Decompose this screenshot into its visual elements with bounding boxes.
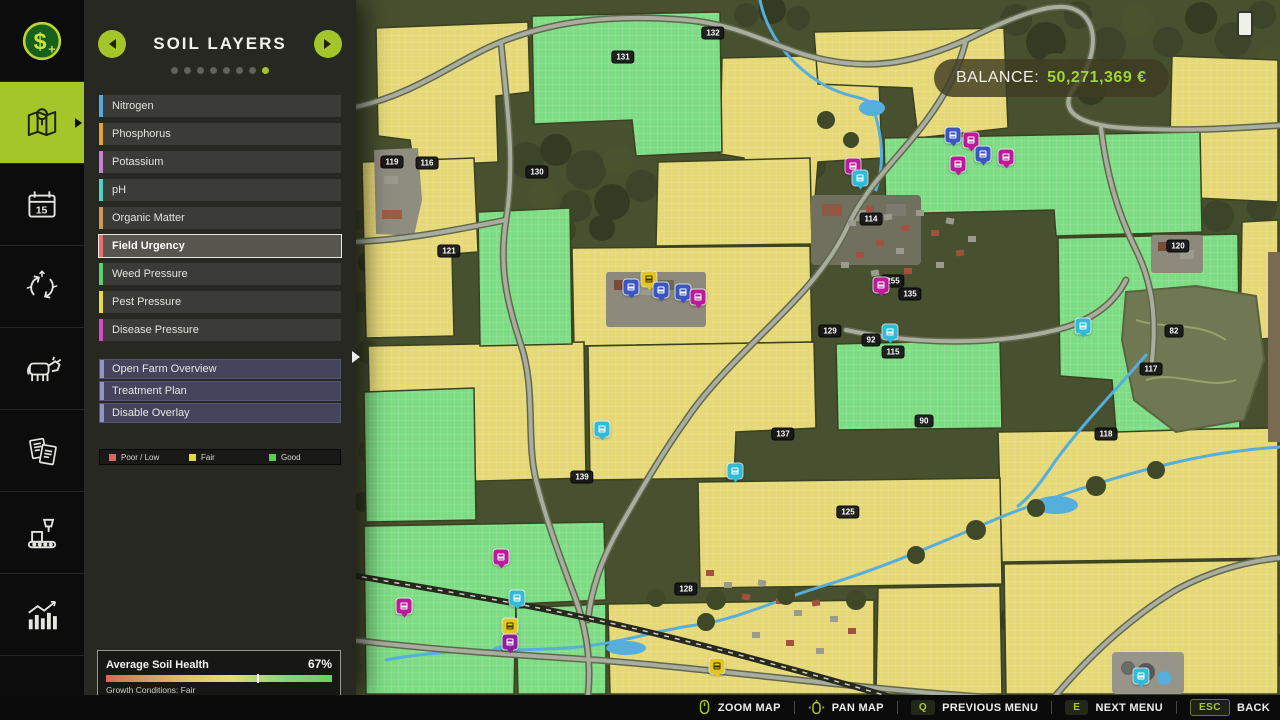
page-dot	[236, 67, 243, 74]
page-dot	[171, 67, 178, 74]
map-icon	[20, 101, 64, 145]
panel-header: SOIL LAYERS	[98, 30, 342, 58]
layer-item-ph[interactable]: pH	[99, 179, 341, 201]
balance-value: 50,271,369 €	[1047, 69, 1146, 87]
poi-production-icon[interactable]	[728, 464, 743, 479]
poi-pointer	[513, 605, 521, 610]
silo-glyph	[628, 284, 635, 291]
soil-layers-panel: SOIL LAYERS NitrogenPhosphorusPotassiump…	[84, 0, 356, 695]
field-badge-117: 117	[1140, 363, 1163, 376]
dirt-strip	[1268, 252, 1280, 442]
layer-color-bar	[99, 319, 103, 341]
poi-shop-icon[interactable]	[710, 659, 725, 674]
svg-text:+: +	[48, 42, 55, 56]
crop-rotation-icon	[21, 266, 63, 308]
poi-pointer	[954, 171, 962, 176]
poi-pointer	[731, 478, 739, 483]
field-badge-92: 92	[862, 334, 881, 347]
key-e: E	[1065, 700, 1088, 715]
poi-pointer	[657, 297, 665, 302]
poi-factory-icon[interactable]	[874, 278, 889, 293]
poi-pointer	[497, 564, 505, 569]
soil-health-summary: Average Soil Health 67% Growth Condition…	[97, 650, 341, 699]
production-glyph	[732, 468, 739, 475]
layer-color-bar	[99, 207, 103, 229]
poi-production-icon[interactable]	[1134, 669, 1149, 684]
legend-swatch	[109, 454, 116, 461]
shop-glyph	[646, 276, 653, 283]
hint-label: ZOOM MAP	[718, 702, 781, 714]
poi-silo-icon[interactable]	[654, 283, 669, 298]
field-badge-128: 128	[674, 583, 697, 596]
layer-item-nitrogen[interactable]: Nitrogen	[99, 95, 341, 117]
field-badge-119: 119	[381, 156, 404, 169]
field-badge-131: 131	[611, 51, 634, 64]
poi-pointer	[506, 649, 514, 654]
layer-label: Phosphorus	[112, 128, 171, 140]
map-landmark	[1238, 12, 1252, 36]
silo-glyph	[950, 132, 957, 139]
layer-color-bar	[99, 291, 103, 313]
hint-label: NEXT MENU	[1095, 702, 1162, 714]
action-accent-bar	[100, 360, 104, 378]
field-badge-135: 135	[898, 288, 921, 301]
arrow-right-icon	[324, 39, 331, 49]
layer-label: Potassium	[112, 156, 163, 168]
sidebar-item-contracts[interactable]	[0, 410, 84, 492]
layer-color-bar	[99, 151, 103, 173]
poi-pointer	[1137, 683, 1145, 688]
next-page-button[interactable]	[314, 30, 342, 58]
legend-swatch	[269, 454, 276, 461]
factory-glyph	[1003, 154, 1010, 161]
layer-label: Nitrogen	[112, 100, 154, 112]
layer-item-pest-pressure[interactable]: Pest Pressure	[99, 291, 341, 313]
soil-health-percent: 67%	[308, 657, 332, 671]
layer-label: pH	[112, 184, 126, 196]
hint-next-menu: ENEXT MENU	[1065, 700, 1163, 715]
panel-actions: Open Farm OverviewTreatment PlanDisable …	[99, 359, 341, 423]
layer-item-field-urgency[interactable]: Field Urgency	[99, 235, 341, 257]
layer-item-disease-pressure[interactable]: Disease Pressure	[99, 319, 341, 341]
shop-glyph	[507, 623, 514, 630]
hint-label: BACK	[1237, 702, 1270, 714]
poi-production-icon[interactable]	[883, 325, 898, 340]
poi-silo-icon[interactable]	[976, 147, 991, 162]
poi-production-icon[interactable]	[853, 171, 868, 186]
arrow-left-icon	[109, 39, 116, 49]
key-q: Q	[911, 700, 935, 715]
production-glyph	[887, 329, 894, 336]
layer-item-phosphorus[interactable]: Phosphorus	[99, 123, 341, 145]
hint-pan-map: PAN MAP	[808, 699, 884, 716]
poi-train-icon[interactable]	[595, 422, 610, 437]
shop-glyph	[714, 663, 721, 670]
production-glyph	[1138, 673, 1145, 680]
layer-color-bar	[99, 263, 103, 285]
page-dot	[249, 67, 256, 74]
poi-production-icon[interactable]	[510, 591, 525, 606]
open-farm-overview-button[interactable]: Open Farm Overview	[99, 359, 341, 379]
layer-item-organic-matter[interactable]: Organic Matter	[99, 207, 341, 229]
poi-factory-icon[interactable]	[964, 133, 979, 148]
layer-color-bar	[99, 235, 103, 257]
action-label: Open Farm Overview	[112, 363, 217, 375]
legend-label: Poor / Low	[121, 453, 159, 462]
sidebar-item-money[interactable]: $+	[0, 0, 84, 82]
layer-item-weed-pressure[interactable]: Weed Pressure	[99, 263, 341, 285]
soil-health-title: Average Soil Health	[106, 659, 209, 671]
action-accent-bar	[100, 382, 104, 400]
legend-item: Fair	[189, 453, 260, 462]
action-label: Treatment Plan	[112, 385, 187, 397]
hint-separator	[1051, 701, 1052, 714]
field-badge-114: 114	[860, 213, 883, 226]
page-title: SOIL LAYERS	[153, 34, 286, 54]
field-badge-120: 120	[1166, 240, 1189, 253]
field-badge-137: 137	[771, 428, 794, 441]
poi-pointer	[949, 142, 957, 147]
previous-page-button[interactable]	[98, 30, 126, 58]
poi-shop-icon[interactable]	[503, 619, 518, 634]
animals-icon	[20, 347, 64, 391]
field-badge-116: 116	[416, 157, 439, 170]
poi-pointer	[627, 294, 635, 299]
layer-label: Field Urgency	[112, 240, 185, 252]
field-badge-121: 121	[437, 245, 460, 258]
mouse-pan-icon	[808, 699, 825, 716]
hint-previous-menu: QPREVIOUS MENU	[911, 700, 1038, 715]
legend-item: Poor / Low	[109, 453, 180, 462]
poi-pointer	[979, 161, 987, 166]
factory-glyph	[695, 294, 702, 301]
poi-silo-icon[interactable]	[676, 285, 691, 300]
production-glyph	[1080, 323, 1087, 330]
poi-pointer	[713, 673, 721, 678]
action-accent-bar	[100, 404, 104, 422]
field-badge-82: 82	[1165, 325, 1184, 338]
treatment-plan-button[interactable]: Treatment Plan	[99, 381, 341, 401]
hint-separator	[794, 701, 795, 714]
poi-production-icon[interactable]	[1076, 319, 1091, 334]
production-glyph	[514, 595, 521, 602]
hint-separator	[1176, 701, 1177, 714]
poi-pointer	[400, 613, 408, 618]
sidebar-item-map[interactable]	[0, 82, 84, 164]
page-dot	[262, 67, 269, 74]
poi-pointer	[1079, 333, 1087, 338]
layer-color-bar	[99, 123, 103, 145]
poi-pointer	[877, 292, 885, 297]
factory-glyph	[498, 554, 505, 561]
factory-glyph	[850, 163, 857, 170]
main-menu-sidebar: $+15	[0, 0, 84, 695]
field-badge-139: 139	[570, 471, 593, 484]
hint-label: PREVIOUS MENU	[942, 702, 1038, 714]
layer-color-bar	[99, 95, 103, 117]
field-badge-118: 118	[1095, 428, 1118, 441]
page-indicator-dots	[84, 67, 356, 74]
sidebar-item-crop-rotation[interactable]	[0, 246, 84, 328]
sidebar-item-statistics[interactable]	[0, 574, 84, 656]
silo-glyph	[658, 287, 665, 294]
legend-swatch	[189, 454, 196, 461]
disable-overlay-button[interactable]: Disable Overlay	[99, 403, 341, 423]
sidebar-item-calendar[interactable]: 15	[0, 164, 84, 246]
factory-glyph	[968, 137, 975, 144]
production-glyph	[857, 175, 864, 182]
hint-zoom-map: ZOOM MAP	[698, 699, 781, 716]
panel-expand-arrow[interactable]	[352, 351, 360, 363]
legend-item: Good	[269, 453, 340, 462]
soil-health-bar	[106, 675, 332, 682]
poi-pointer	[856, 185, 864, 190]
game-screen: 1321311191161301211141202551351299211582…	[0, 0, 1280, 720]
poi-factory-icon[interactable]	[951, 157, 966, 172]
poi-factory-icon[interactable]	[999, 150, 1014, 165]
factory-glyph	[878, 282, 885, 289]
field-badge-115: 115	[882, 346, 905, 359]
hint-separator	[897, 701, 898, 714]
page-dot	[210, 67, 217, 74]
action-label: Disable Overlay	[112, 407, 190, 419]
silo-glyph	[680, 289, 687, 296]
field-badge-125: 125	[836, 506, 859, 519]
soil-health-marker	[257, 674, 259, 683]
sidebar-item-animals[interactable]	[0, 328, 84, 410]
hint-label: PAN MAP	[832, 702, 884, 714]
train-glyph	[599, 426, 606, 433]
growth-conditions-label: Growth Conditions: Fair	[106, 685, 332, 695]
money-icon: $+	[21, 20, 63, 62]
layer-item-potassium[interactable]: Potassium	[99, 151, 341, 173]
production-icon	[20, 511, 64, 555]
layer-label: Pest Pressure	[112, 296, 181, 308]
poi-pointer	[598, 436, 606, 441]
poi-factory-icon[interactable]	[503, 635, 518, 650]
layer-label: Disease Pressure	[112, 324, 199, 336]
factory-glyph	[955, 161, 962, 168]
layer-label: Organic Matter	[112, 212, 185, 224]
page-dot	[223, 67, 230, 74]
map-canvas	[356, 0, 1280, 695]
poi-factory-icon[interactable]	[494, 550, 509, 565]
svg-text:15: 15	[36, 204, 48, 216]
layer-color-bar	[99, 179, 103, 201]
poi-pointer	[1002, 164, 1010, 169]
page-dot	[197, 67, 204, 74]
balance-label: BALANCE:	[956, 69, 1039, 87]
poi-silo-icon[interactable]	[946, 128, 961, 143]
balance-display: BALANCE: 50,271,369 €	[934, 59, 1169, 97]
silo-glyph	[980, 151, 987, 158]
field-badge-129: 129	[818, 325, 841, 338]
field-badge-130: 130	[525, 166, 548, 179]
key-esc: ESC	[1190, 699, 1230, 716]
controls-hint-bar: ZOOM MAPPAN MAPQPREVIOUS MENUENEXT MENUE…	[0, 695, 1280, 720]
poi-pointer	[694, 304, 702, 309]
sidebar-item-production[interactable]	[0, 492, 84, 574]
page-dot	[184, 67, 191, 74]
poi-factory-icon[interactable]	[397, 599, 412, 614]
layer-label: Weed Pressure	[112, 268, 188, 280]
contracts-icon	[21, 430, 63, 472]
poi-pointer	[886, 339, 894, 344]
poi-silo-icon[interactable]	[624, 280, 639, 295]
factory-glyph	[401, 603, 408, 610]
legend-label: Good	[281, 453, 301, 462]
hint-back: ESCBACK	[1190, 699, 1270, 716]
svg-text:$: $	[34, 28, 47, 54]
poi-pointer	[967, 147, 975, 152]
soil-layer-list: NitrogenPhosphorusPotassiumpHOrganic Mat…	[99, 95, 341, 341]
legend-label: Fair	[201, 453, 215, 462]
field-badge-90: 90	[915, 415, 934, 428]
world-map[interactable]: 1321311191161301211141202551351299211582…	[356, 0, 1280, 695]
statistics-icon	[20, 593, 64, 637]
poi-pointer	[679, 299, 687, 304]
mouse-zoom-icon	[698, 699, 711, 716]
field-badge-132: 132	[701, 27, 724, 40]
overlay-legend: Poor / LowFairGood	[99, 449, 341, 465]
factory-glyph	[507, 639, 514, 646]
poi-factory-icon[interactable]	[691, 290, 706, 305]
calendar-icon: 15	[21, 184, 63, 226]
poi-pointer	[645, 286, 653, 291]
